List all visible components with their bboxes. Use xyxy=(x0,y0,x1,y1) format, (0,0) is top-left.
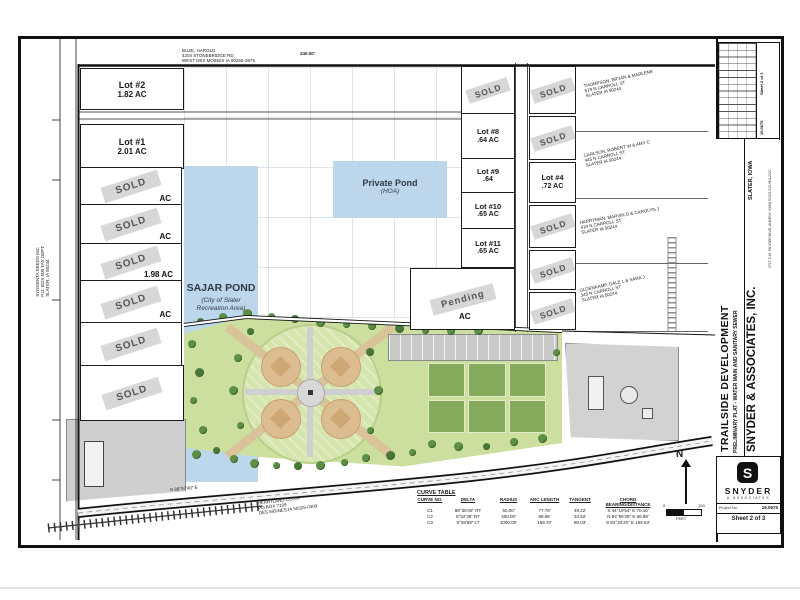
rev-project-note: 19.0675 xyxy=(759,101,764,135)
curve-cell: 9°08'59" LT xyxy=(445,520,491,525)
scale-zero: 0 xyxy=(663,503,665,508)
curve-cell: 88°36'48" RT xyxy=(445,508,491,513)
owner-syngenta: SYNGENTA SEEDS INCP.O. BOX 500 TAX DEPTS… xyxy=(35,227,51,297)
sold-lot: SOLD 1.98 AC xyxy=(80,243,182,282)
pending-lot: Pending AC xyxy=(410,268,515,330)
sold-lot: SOLD AC xyxy=(80,167,182,206)
sold-stamp: SOLD xyxy=(102,377,162,409)
project-title: TRAILSIDE DEVELOPMENT xyxy=(719,312,731,452)
lot-name: Lot #10 xyxy=(475,203,501,212)
sheet-separator xyxy=(717,513,780,514)
sold-lot: SOLD AC xyxy=(80,204,182,245)
sold-stamp: SOLD xyxy=(101,208,161,240)
rev-sheet-note: Sheet 2 of 3 xyxy=(759,47,764,95)
sold-lot: SOLD xyxy=(80,365,184,421)
lot-name: Lot #11 xyxy=(475,240,501,249)
sold-lot: SOLD AC xyxy=(80,280,182,324)
lot-8: Lot #8 .64 AC xyxy=(461,113,515,160)
sold-lot: SOLD xyxy=(529,66,576,114)
lot-2: Lot #2 1.82 AC xyxy=(80,68,184,110)
scale-bar xyxy=(666,509,702,516)
lot-name: Lot #9 xyxy=(477,168,499,177)
north-arrow-line xyxy=(685,466,687,504)
area-fragment: AC xyxy=(159,232,171,241)
lot-1: Lot #1 2.01 AC xyxy=(80,124,184,169)
lot-area: .64 xyxy=(483,176,493,184)
area-fragment: AC xyxy=(159,194,171,203)
firm-address: 2727 S.W. SNYDER BLVD. ANKENY, IOWA 5002… xyxy=(768,148,772,268)
curve-cell: 49.22' xyxy=(565,508,595,513)
pending-stamp: Pending xyxy=(430,283,496,314)
top-dimension: 240.00' xyxy=(300,51,315,56)
project-no-row: Project No: 19.0675 xyxy=(719,505,778,510)
lot-name: Lot #1 xyxy=(119,137,146,147)
sheet-label: Sheet 2 of 3 xyxy=(717,516,780,522)
area-fragment: 1.98 AC xyxy=(144,270,173,279)
curve-cell: 1000.00' xyxy=(493,520,524,525)
sold-stamp: SOLD xyxy=(531,298,575,323)
curve-cell: C1 xyxy=(417,508,443,513)
curve-cell: 77.78' xyxy=(526,508,563,513)
firm-name: SNYDER & ASSOCIATES, INC. xyxy=(746,280,758,452)
area-fragment: AC xyxy=(459,312,471,321)
curve-col-header: DELTA xyxy=(445,497,491,507)
scan-page-edge xyxy=(0,587,800,589)
curve-cell: 34.52' xyxy=(565,514,595,519)
curve-cell: C3 xyxy=(417,520,443,525)
sold-stamp: SOLD xyxy=(531,214,575,239)
curve-table: CURVE TABLE CURVE NO. DELTA RADIUS ARC L… xyxy=(417,490,659,525)
scale-hundred: 100 xyxy=(698,503,705,508)
scale-unit: FEET xyxy=(676,516,686,521)
curve-col-header: CHORD BEARING/DISTANCE xyxy=(597,497,659,507)
logo-separator xyxy=(717,503,780,504)
revision-rows xyxy=(719,43,757,139)
sold-stamp: SOLD xyxy=(531,257,575,282)
sold-lot: SOLD xyxy=(529,292,576,330)
curve-cell: S 84°34'20" E 159.53' xyxy=(597,520,659,525)
snyder-logo-icon: S xyxy=(737,462,758,483)
road-ticks xyxy=(52,120,60,480)
curve-cell: N 84°56'25" E 68.88' xyxy=(597,514,659,519)
lot-10: Lot #10 .65 AC xyxy=(461,192,515,230)
lot-9: Lot #9 .64 xyxy=(461,158,515,194)
revision-table: Sheet 2 of 3 19.0675 xyxy=(718,42,780,140)
lot-11: Lot #11 .65 AC xyxy=(461,228,515,268)
lot-name: Lot #4 xyxy=(541,174,563,183)
title-area-divider xyxy=(744,138,745,456)
lot-area: .65 AC xyxy=(477,248,499,256)
sold-lot: SOLD xyxy=(80,322,182,367)
curve-col-header: RADIUS xyxy=(493,497,524,507)
project-no-value: 19.0675 xyxy=(762,505,778,510)
curve-cell: 400.00' xyxy=(493,514,524,519)
sold-stamp: SOLD xyxy=(531,125,575,150)
sheet-subtitle: PRELIMINARY PLAT - WATER MAIN AND SANITA… xyxy=(733,303,739,453)
lot-area: 1.82 AC xyxy=(117,90,146,99)
lot-area: 2.01 AC xyxy=(117,147,146,156)
project-no-label: Project No: xyxy=(719,506,738,510)
sold-lot: SOLD xyxy=(461,66,515,115)
lot-area: .65 AC xyxy=(477,211,499,219)
curve-col-header: ARC LENGTH xyxy=(526,497,563,507)
location-label: SLATER, IOWA xyxy=(748,150,754,200)
lot-name: Lot #8 xyxy=(477,128,499,137)
sold-stamp: SOLD xyxy=(101,170,161,202)
curve-table-title: CURVE TABLE xyxy=(417,490,659,496)
logo-word: SNYDER xyxy=(717,486,780,496)
curve-cell: 9°52'38" RT xyxy=(445,514,491,519)
area-fragment: AC xyxy=(159,310,171,319)
curve-cell: 68.96' xyxy=(526,514,563,519)
plat-sheet: Lot #2 1.82 AC Lot #1 2.01 AC SOLD AC SO… xyxy=(0,0,800,600)
lot-name: Lot #2 xyxy=(119,80,146,90)
curve-cell: C2 xyxy=(417,514,443,519)
lot-area: .64 AC xyxy=(477,137,499,145)
logo-box: S SNYDER & ASSOCIATES Project No: 19.067… xyxy=(716,456,781,534)
sold-lot: SOLD xyxy=(529,250,576,290)
curve-col-header: CURVE NO. xyxy=(417,497,443,507)
sold-stamp: SOLD xyxy=(466,78,510,103)
sajar-pond-label: SAJAR POND (City of Slater Recreation Ar… xyxy=(186,282,256,312)
curve-cell: 80.03' xyxy=(565,520,595,525)
sold-lot: SOLD xyxy=(529,116,576,160)
logo-subword: & ASSOCIATES xyxy=(717,496,780,500)
sold-lot: SOLD xyxy=(529,205,576,248)
owner-buze: BUZE, HAROLD4204 STONEBRIDGE RDWEST DES … xyxy=(182,48,255,64)
lot-4: Lot #4 .72 AC xyxy=(529,162,576,203)
curve-cell: S 44°19'54" E 70.16' xyxy=(597,508,659,513)
sold-stamp: SOLD xyxy=(101,328,161,360)
curve-cell: 159.70' xyxy=(526,520,563,525)
curve-col-header: TANGENT xyxy=(565,497,595,507)
private-pond-label: Private Pond (HOA) xyxy=(333,178,447,196)
lot-area: .72 AC xyxy=(542,183,564,191)
sold-stamp: SOLD xyxy=(101,286,161,318)
curve-cell: 50.00' xyxy=(493,508,524,513)
sold-stamp: SOLD xyxy=(531,77,575,102)
